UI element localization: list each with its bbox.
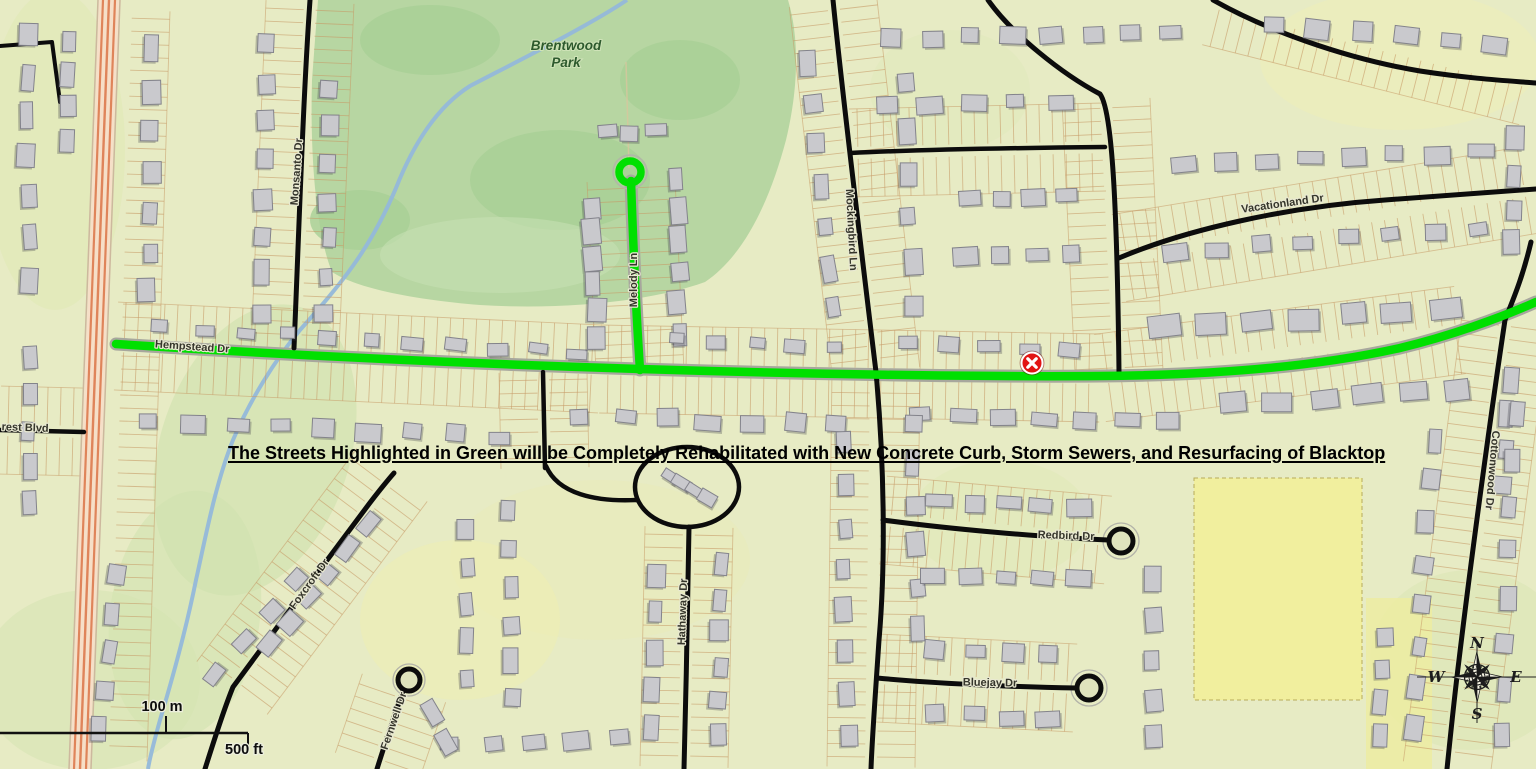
park-label-line1: Brentwood	[531, 38, 602, 53]
park-label-line2: Park	[551, 55, 582, 70]
map-canvas[interactable]: Brentwood Park Hempstead Dr Melody Ln Mo…	[0, 0, 1536, 769]
map-viewport[interactable]: Brentwood Park Hempstead Dr Melody Ln Mo…	[0, 0, 1536, 769]
compass-north-label: N	[1469, 634, 1485, 652]
compass-south-label: S	[1472, 705, 1483, 723]
street-label-rest-blvd: rest Blvd	[1, 421, 48, 435]
red-x-marker-icon[interactable]	[1020, 351, 1044, 375]
rehabilitation-annotation-text: The Streets Highlighted in Green will be…	[228, 443, 1385, 464]
compass-west-label: W	[1428, 668, 1447, 686]
street-label-redbird: Redbird Dr	[1037, 529, 1095, 543]
street-label-melody: Melody Ln	[628, 253, 640, 308]
scale-imperial-label: 500 ft	[225, 742, 263, 758]
street-label-bluejay: Bluejay Dr	[963, 677, 1018, 690]
map-graphics-layer	[0, 0, 1536, 769]
compass-east-label: E	[1509, 668, 1522, 686]
street-label-hathaway: Hathaway Dr	[676, 578, 690, 646]
scale-metric-label: 100 m	[141, 699, 182, 715]
